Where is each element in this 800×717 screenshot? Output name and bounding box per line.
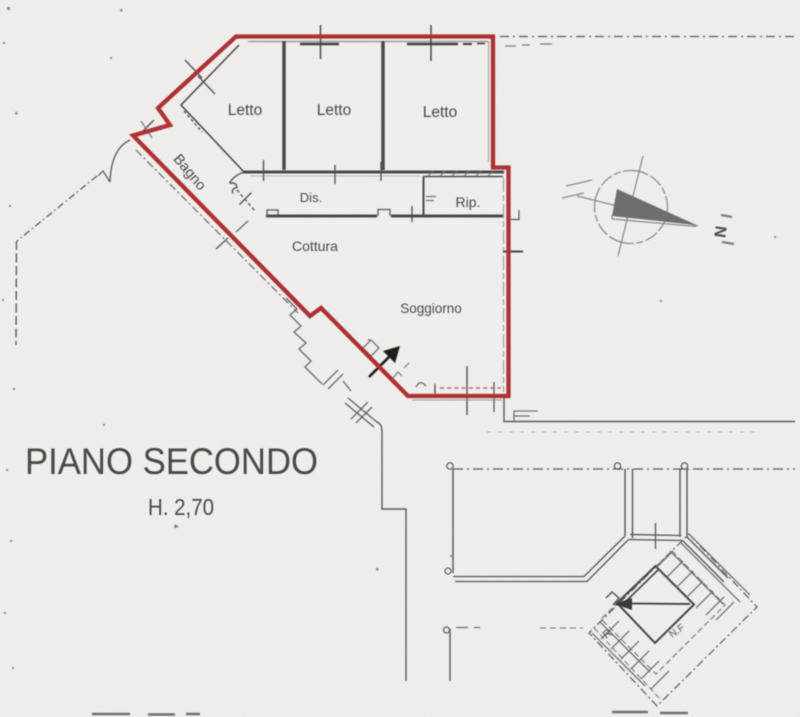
svg-text:Soggiorno: Soggiorno [400,301,462,316]
svg-text:Letto: Letto [228,102,262,119]
svg-text:Letto: Letto [317,102,351,119]
svg-text:PIANO SECONDO: PIANO SECONDO [25,441,318,482]
svg-text:H. 2,70: H. 2,70 [148,494,214,520]
svg-text:Dis.: Dis. [300,190,322,205]
svg-text:N: N [712,225,730,239]
svg-text:Rip.: Rip. [456,194,481,210]
svg-text:Letto: Letto [423,104,457,121]
svg-text:Cottura: Cottura [292,238,338,254]
